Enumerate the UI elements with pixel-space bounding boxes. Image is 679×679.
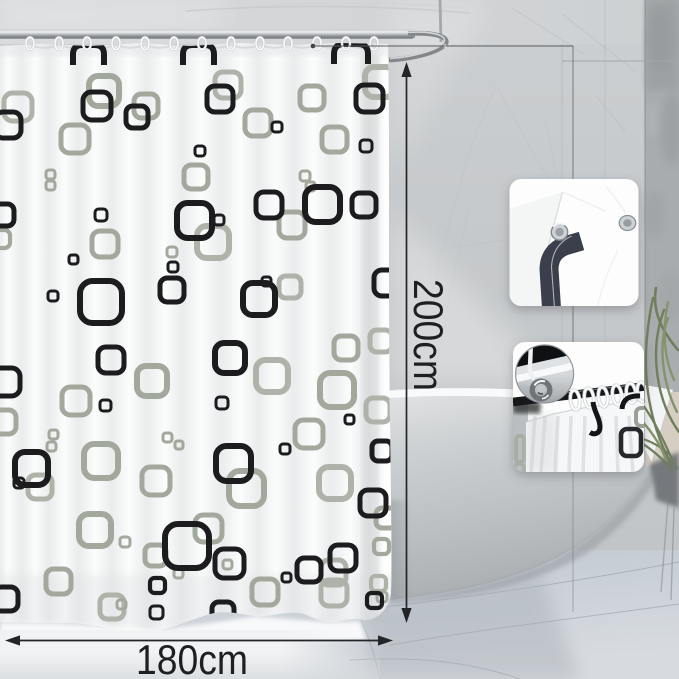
svg-text:180cm: 180cm	[136, 636, 248, 679]
svg-text:200cm: 200cm	[405, 279, 452, 391]
